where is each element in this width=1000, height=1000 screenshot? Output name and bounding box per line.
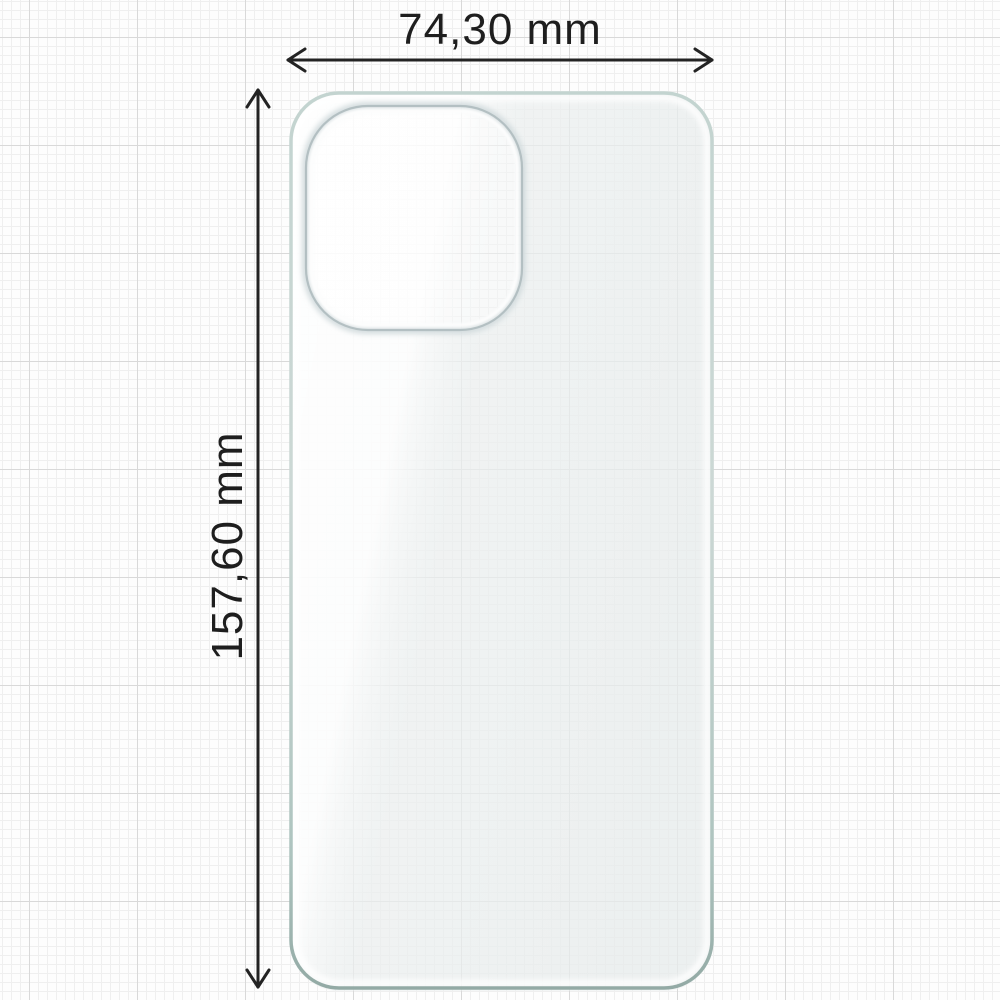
width-dimension-label: 74,30 mm [398,8,602,52]
phone-case-drawing [0,0,1000,1000]
dimension-diagram: 74,30 mm 157,60 mm [0,0,1000,1000]
height-dimension-label: 157,60 mm [206,431,250,660]
camera-cutout [306,106,522,330]
